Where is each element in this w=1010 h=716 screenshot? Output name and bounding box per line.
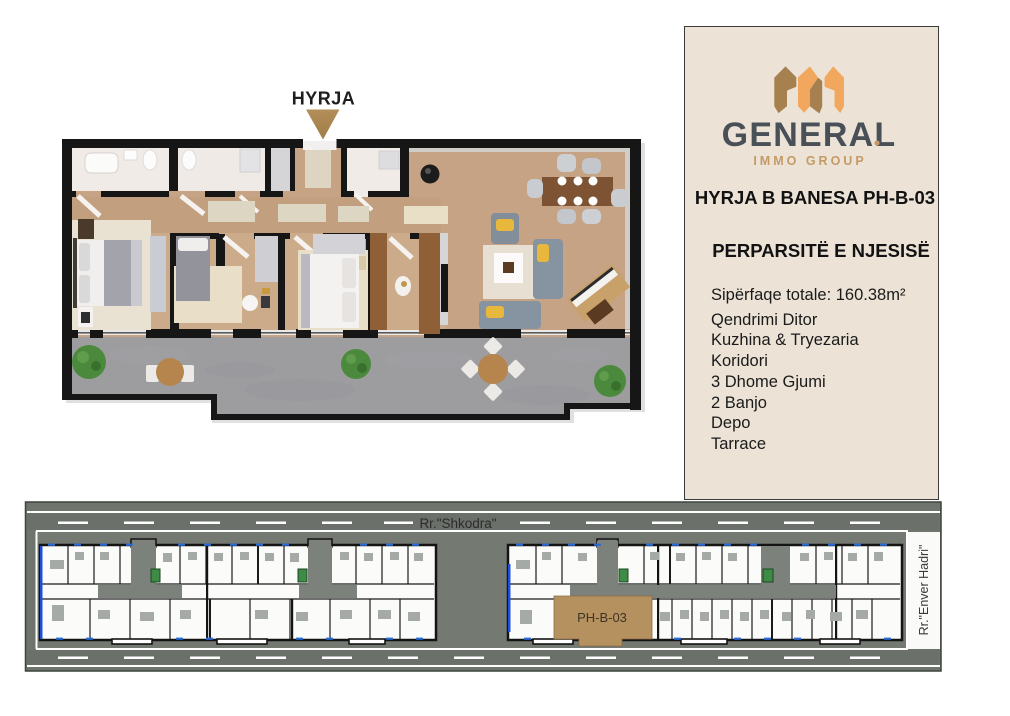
svg-text:HYRJA: HYRJA [292, 89, 356, 109]
svg-text:IMMO GROUP: IMMO GROUP [753, 154, 866, 168]
svg-text:Rr."Shkodra": Rr."Shkodra" [419, 516, 496, 531]
svg-text:PH-B-03: PH-B-03 [577, 610, 627, 625]
svg-text:Rr."Enver Hadri": Rr."Enver Hadri" [917, 545, 931, 636]
svg-text:GENERAL: GENERAL [722, 116, 897, 154]
